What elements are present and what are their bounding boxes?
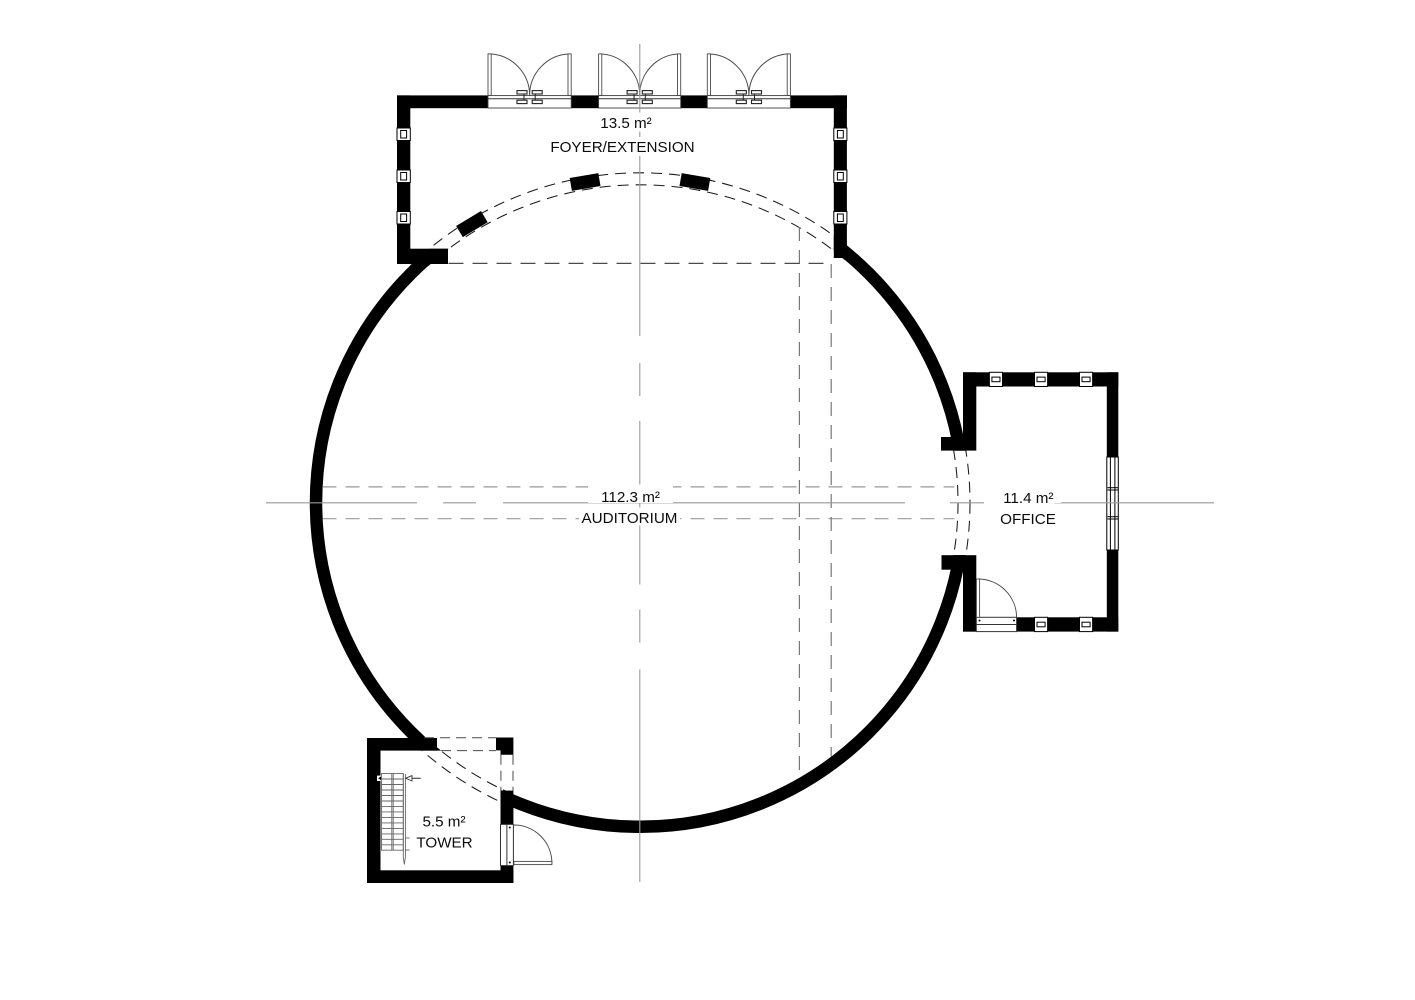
svg-text:OFFICE: OFFICE [1000,511,1056,528]
svg-text:13.5 m²: 13.5 m² [600,115,652,132]
svg-text:FOYER/EXTENSION: FOYER/EXTENSION [550,139,694,156]
svg-text:AUDITORIUM: AUDITORIUM [582,510,678,527]
svg-text:5.5 m²: 5.5 m² [422,813,465,830]
svg-text:112.3 m²: 112.3 m² [601,489,660,506]
svg-text:11.4 m²: 11.4 m² [1003,490,1053,507]
svg-text:TOWER: TOWER [416,834,472,851]
